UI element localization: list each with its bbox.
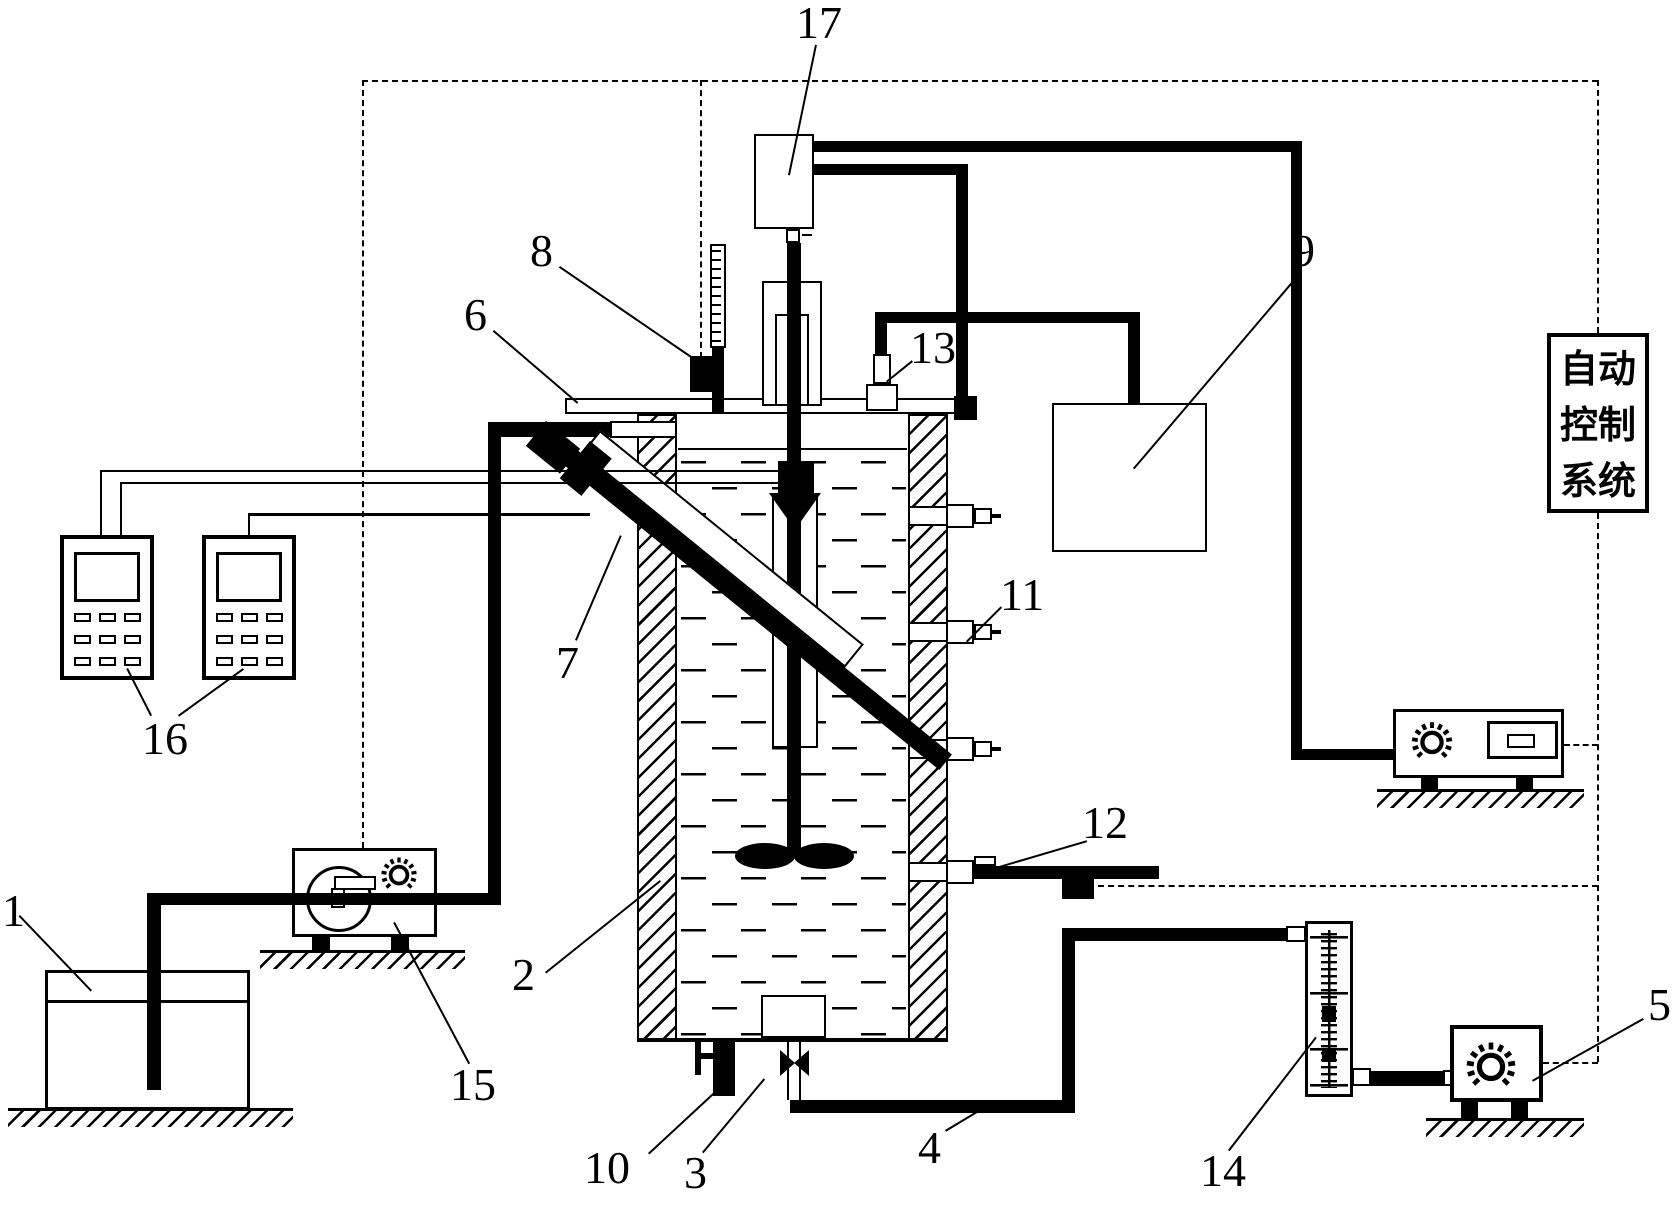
leader-9 [1133, 272, 1301, 469]
ref-label-6: 6 [464, 292, 487, 338]
ref-label-9: 9 [1292, 228, 1315, 274]
port-flange [946, 504, 974, 528]
keypad-button [266, 613, 283, 622]
port-flange [946, 737, 974, 761]
meter1-cable-h [100, 470, 782, 472]
keypad-button [216, 613, 233, 622]
pipe-tank-to-pump [148, 893, 500, 905]
thermometer-scale [712, 250, 721, 342]
keypad-button [124, 657, 141, 666]
pump-dial-icon [378, 852, 420, 894]
keypad-button [241, 635, 258, 644]
drain-pipe-h2 [1075, 928, 1286, 941]
keypad-button [216, 657, 233, 666]
column-outlet-connector [1352, 1068, 1371, 1086]
ref-label-7: 7 [556, 640, 579, 686]
aeration-line-v [956, 164, 968, 404]
ref-label-13: 13 [910, 325, 956, 371]
drain-pipe-v [1062, 928, 1075, 1113]
leader-5 [1532, 1018, 1644, 1082]
pump-leg [312, 937, 330, 952]
meter1-cable2-v [120, 482, 122, 537]
control-box-line3: 系统 [1551, 453, 1645, 509]
motor-line-h [814, 141, 1302, 152]
motor-coupling-tick [802, 234, 812, 236]
drain-port-flange [946, 860, 974, 884]
port-tip [992, 747, 1001, 751]
meter2-cable-h [248, 513, 590, 516]
control-line-top [362, 80, 1598, 82]
ref-label-10: 10 [584, 1145, 630, 1191]
gas-box [1052, 403, 1207, 552]
impeller-blade-left [735, 843, 795, 869]
air-pump-dial-icon [1462, 1035, 1520, 1093]
keypad-button [99, 635, 116, 644]
control-box-line2: 控制 [1551, 397, 1645, 453]
leader-14 [1228, 1037, 1317, 1152]
pipe-riser [488, 422, 501, 905]
controller-dial-icon [1408, 716, 1456, 764]
keypad-button [241, 657, 258, 666]
ground-under-airpump [1426, 1118, 1584, 1137]
control-line-from-drain-sensor [1098, 885, 1598, 887]
controller-display-window [1507, 734, 1535, 748]
leader-7 [575, 535, 622, 641]
port-nozzle [974, 741, 992, 757]
control-line-to-airpump [1543, 1062, 1598, 1064]
port-channel [908, 622, 948, 642]
port-tip [992, 630, 1001, 634]
column-inlet-connector [1286, 926, 1306, 942]
drain-valve-stem-l [787, 1042, 789, 1100]
control-line-right-upper [1597, 80, 1599, 333]
keypad-button [99, 657, 116, 666]
level-sensor-wire [880, 326, 882, 354]
keypad-button [266, 657, 283, 666]
ref-label-14: 14 [1200, 1148, 1246, 1194]
ref-label-1: 1 [2, 888, 25, 934]
keypad-button [216, 635, 233, 644]
controller-leg [1421, 778, 1438, 791]
ref-label-17: 17 [796, 0, 842, 46]
aeration-lid-union [954, 396, 977, 420]
meter-1-keypad [74, 613, 144, 673]
drain-pipe-h1 [790, 1100, 1075, 1113]
impeller-blade-right [794, 843, 854, 869]
motor-line-to-controller [1291, 749, 1395, 760]
auto-control-system-box: 自动 控制 系统 [1547, 333, 1649, 513]
keypad-button [74, 657, 91, 666]
bottom-sump [761, 995, 826, 1038]
drain-port-sensor [1062, 879, 1094, 899]
ref-label-2: 2 [512, 952, 535, 998]
meter1-cable2-h [120, 482, 782, 484]
drain-port-channel [908, 862, 948, 882]
meter-2-keypad [216, 613, 286, 673]
ref-label-4: 4 [918, 1125, 941, 1171]
ref-label-15: 15 [450, 1062, 496, 1108]
ref-label-3: 3 [684, 1150, 707, 1196]
port-flange [946, 620, 974, 644]
controller-leg [1516, 778, 1533, 791]
keypad-button [74, 635, 91, 644]
vessel-bottom [637, 1038, 948, 1042]
airpump-inlet-connector [1443, 1070, 1452, 1086]
drain-valve-stem-r [799, 1042, 801, 1100]
side-valve-handle-h [701, 1053, 713, 1059]
leader-8 [559, 266, 700, 364]
drain-port-step [974, 856, 996, 866]
leader-6 [493, 330, 579, 404]
pipe-column-to-airpump [1371, 1071, 1443, 1086]
drain-port-pipe [974, 866, 1159, 879]
ground-under-controller [1377, 789, 1584, 808]
keypad-button [99, 613, 116, 622]
keypad-button [266, 635, 283, 644]
control-line-to-pump [362, 80, 364, 848]
keypad-button [241, 613, 258, 622]
control-line-to-thermometer [700, 80, 702, 358]
ref-label-8: 8 [530, 228, 553, 274]
ref-label-5: 5 [1648, 982, 1671, 1028]
tank-dip-tube [147, 893, 161, 1090]
control-line-to-controller [1564, 744, 1598, 746]
port-tip [992, 514, 1001, 518]
control-line-right-lower [1597, 513, 1599, 1062]
ref-label-11: 11 [1000, 572, 1044, 618]
keypad-button [124, 613, 141, 622]
ref-label-12: 12 [1082, 800, 1128, 846]
shaft-coupling [778, 461, 814, 493]
port-nozzle [974, 508, 992, 524]
ground-under-tank [8, 1108, 293, 1127]
meter-1-screen [74, 552, 140, 602]
bioreactor-schematic: 自动 控制 系统 [0, 0, 1678, 1215]
level-sensor-base [866, 384, 898, 411]
motor-coupling [786, 229, 800, 243]
ground-under-pump [260, 950, 465, 969]
flow-meter-scale [1308, 924, 1350, 1094]
leader-15 [393, 922, 470, 1064]
stirrer-motor [754, 134, 814, 229]
meter2-cable-v [248, 513, 250, 537]
exhaust-pipe-v2 [1128, 312, 1140, 404]
stirrer-shaft [787, 243, 801, 852]
meter-2-screen [216, 552, 282, 602]
keypad-button [124, 635, 141, 644]
port-channel [908, 506, 948, 526]
meter1-cable-v [100, 470, 102, 537]
feed-wall-channel [610, 421, 677, 438]
thermometer-block [690, 356, 720, 392]
ref-label-16: 16 [142, 716, 188, 762]
air-pump-leg [1461, 1102, 1478, 1120]
control-box-line1: 自动 [1551, 341, 1645, 397]
keypad-button [74, 613, 91, 622]
side-valve-body [713, 1039, 735, 1096]
drain-valve-bowtie [794, 1050, 809, 1076]
aeration-line-h [814, 164, 968, 175]
air-pump-leg [1511, 1102, 1528, 1120]
